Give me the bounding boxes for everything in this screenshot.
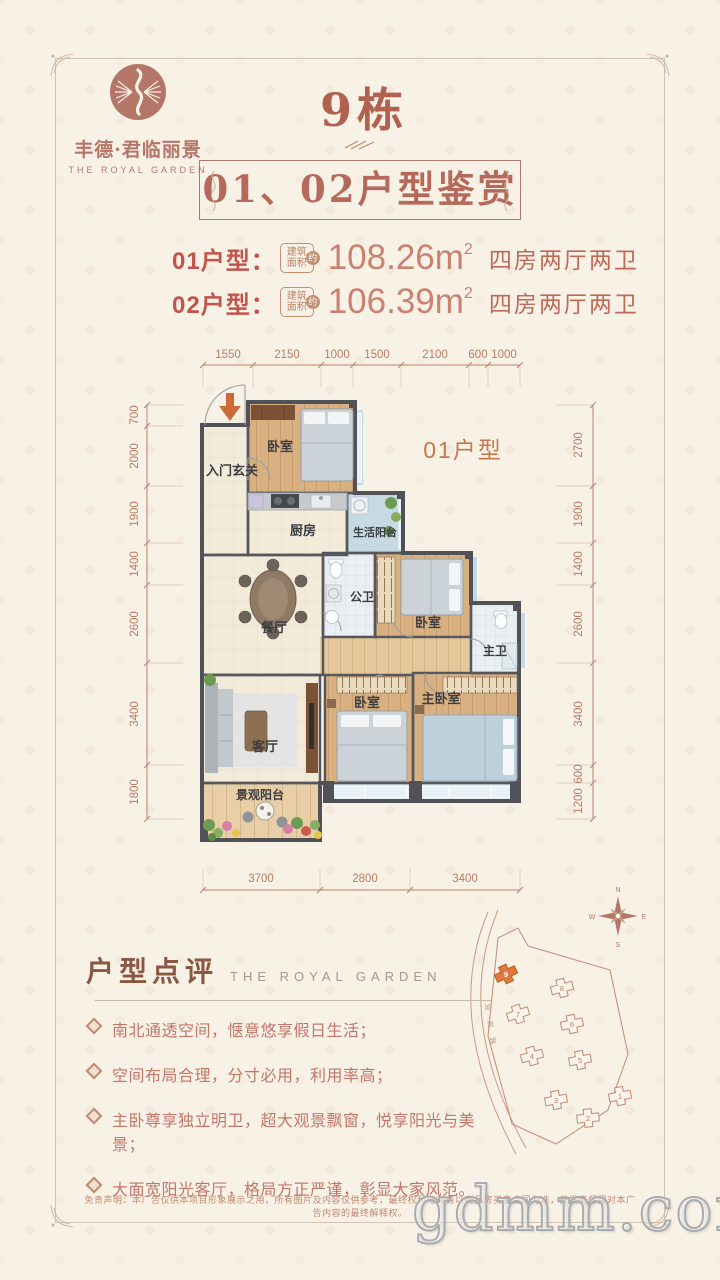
unit02-area: 106.39m2 bbox=[328, 282, 473, 322]
svg-text:2600: 2600 bbox=[573, 611, 585, 637]
badge-approx-mark: 约 bbox=[306, 251, 320, 265]
entry-arrow-icon bbox=[219, 393, 241, 421]
svg-text:N: N bbox=[615, 887, 620, 894]
svg-text:1000: 1000 bbox=[491, 349, 517, 361]
review-title: 户型点评 bbox=[86, 950, 218, 990]
room-label-living: 客厅 bbox=[252, 739, 278, 754]
svg-text:6: 6 bbox=[570, 1020, 574, 1029]
floorplan-drawing: 1550 2150 1000 1500 2100 600 1000 700 20… bbox=[100, 330, 640, 910]
diamond-bullet-icon bbox=[86, 1063, 103, 1080]
building-title: 9栋 bbox=[0, 74, 720, 140]
spec-row-unit02: 02户型： 建筑 面积 约 106.39m2 四房两厅两卫 bbox=[172, 281, 639, 323]
review-point: 南北通透空间，惬意悠享假日生活； bbox=[86, 1017, 500, 1041]
svg-text:1800: 1800 bbox=[129, 779, 141, 805]
section-title: 01、02户型鉴赏 bbox=[200, 161, 520, 217]
slash-divider-icon bbox=[0, 137, 720, 150]
svg-text:4: 4 bbox=[530, 1052, 534, 1061]
svg-text:2: 2 bbox=[586, 1114, 590, 1123]
room-label-kitchen: 厨房 bbox=[290, 523, 316, 538]
unit02-label: 02户型： bbox=[172, 285, 276, 320]
svg-text:1550: 1550 bbox=[215, 349, 241, 361]
section-title-frame: 01、02户型鉴赏 bbox=[199, 160, 521, 220]
room-label-dining: 餐厅 bbox=[260, 620, 287, 635]
diamond-bullet-icon bbox=[86, 1018, 103, 1035]
svg-text:700: 700 bbox=[129, 405, 141, 424]
site-boundary bbox=[488, 928, 628, 1144]
diamond-bullet-icon bbox=[86, 1177, 103, 1194]
unit01-rooms: 四房两厅两卫 bbox=[489, 241, 639, 275]
room-label-service-balcony: 生活阳台 bbox=[353, 525, 397, 539]
corner-flourish-icon bbox=[48, 1204, 74, 1230]
review-divider bbox=[95, 1000, 491, 1001]
svg-text:2700: 2700 bbox=[573, 432, 585, 458]
svg-text:1500: 1500 bbox=[364, 349, 390, 361]
room-label-master-bedroom: 主卧室 bbox=[421, 691, 460, 706]
area-badge: 建筑 面积 约 bbox=[280, 243, 314, 273]
watermark: gdmm.com bbox=[412, 1172, 720, 1245]
svg-text:1400: 1400 bbox=[573, 551, 585, 577]
svg-text:2100: 2100 bbox=[422, 349, 448, 361]
svg-text:1900: 1900 bbox=[573, 501, 585, 527]
review-point: 主卧尊享独立明卫，超大观景飘窗，悦享阳光与美景； bbox=[86, 1107, 500, 1155]
svg-text:E: E bbox=[642, 914, 647, 921]
unit01-label: 01户型： bbox=[172, 241, 276, 276]
svg-text:1400: 1400 bbox=[129, 551, 141, 577]
spec-row-unit01: 01户型： 建筑 面积 约 108.26m2 四房两厅两卫 bbox=[172, 237, 639, 279]
review-point: 空间布局合理，分寸必用，利用率高； bbox=[86, 1062, 500, 1086]
svg-text:1900: 1900 bbox=[129, 501, 141, 527]
room-label-guest-bath: 公卫 bbox=[350, 590, 374, 604]
svg-text:S: S bbox=[616, 942, 621, 949]
svg-text:1: 1 bbox=[618, 1092, 622, 1101]
scroll-ornament-icon bbox=[499, 169, 515, 218]
svg-text:3700: 3700 bbox=[248, 873, 274, 885]
svg-text:1000: 1000 bbox=[324, 349, 350, 361]
svg-text:600: 600 bbox=[573, 764, 585, 783]
diamond-bullet-icon bbox=[86, 1108, 103, 1125]
svg-text:7: 7 bbox=[516, 1010, 520, 1019]
svg-text:8: 8 bbox=[560, 984, 564, 993]
room-label-master-bath: 主卫 bbox=[483, 643, 507, 658]
svg-text:5: 5 bbox=[578, 1056, 582, 1065]
svg-text:2800: 2800 bbox=[352, 873, 378, 885]
svg-text:600: 600 bbox=[468, 349, 487, 361]
room-label-bedroom-bottom: 卧室 bbox=[354, 695, 380, 710]
svg-text:2000: 2000 bbox=[129, 443, 141, 469]
svg-text:2150: 2150 bbox=[274, 349, 300, 361]
unit01-area: 108.26m2 bbox=[328, 238, 473, 278]
svg-text:3400: 3400 bbox=[573, 701, 585, 727]
svg-text:3400: 3400 bbox=[129, 701, 141, 727]
room-label-bedroom-top: 卧室 bbox=[267, 439, 293, 454]
svg-text:2600: 2600 bbox=[129, 611, 141, 637]
svg-text:3: 3 bbox=[554, 1096, 558, 1105]
poster-page: 丰德·君临丽景 THE ROYAL GARDEN 9栋 01、02户型鉴赏 01… bbox=[0, 0, 720, 1280]
area-badge: 建筑 面积 约 bbox=[280, 287, 314, 317]
room-label-bedroom-mid: 卧室 bbox=[415, 615, 441, 630]
badge-approx-mark: 约 bbox=[306, 295, 320, 309]
svg-text:9: 9 bbox=[504, 970, 508, 979]
compass-icon: N E S W bbox=[589, 887, 647, 949]
room-label-view-balcony: 景观阳台 bbox=[236, 787, 284, 802]
svg-text:1200: 1200 bbox=[573, 788, 585, 814]
svg-text:W: W bbox=[589, 914, 596, 921]
scroll-ornament-icon bbox=[205, 169, 221, 218]
unit-specs: 01户型： 建筑 面积 约 108.26m2 四房两厅两卫 02户型： 建筑 面… bbox=[172, 237, 639, 325]
room-label-hall: 入门玄关 bbox=[206, 463, 258, 478]
plan-unit-label: 01户型 bbox=[423, 437, 503, 463]
review-subtitle: THE ROYAL GARDEN bbox=[230, 969, 441, 984]
svg-text:3400: 3400 bbox=[452, 873, 478, 885]
unit02-rooms: 四房两厅两卫 bbox=[489, 285, 639, 319]
